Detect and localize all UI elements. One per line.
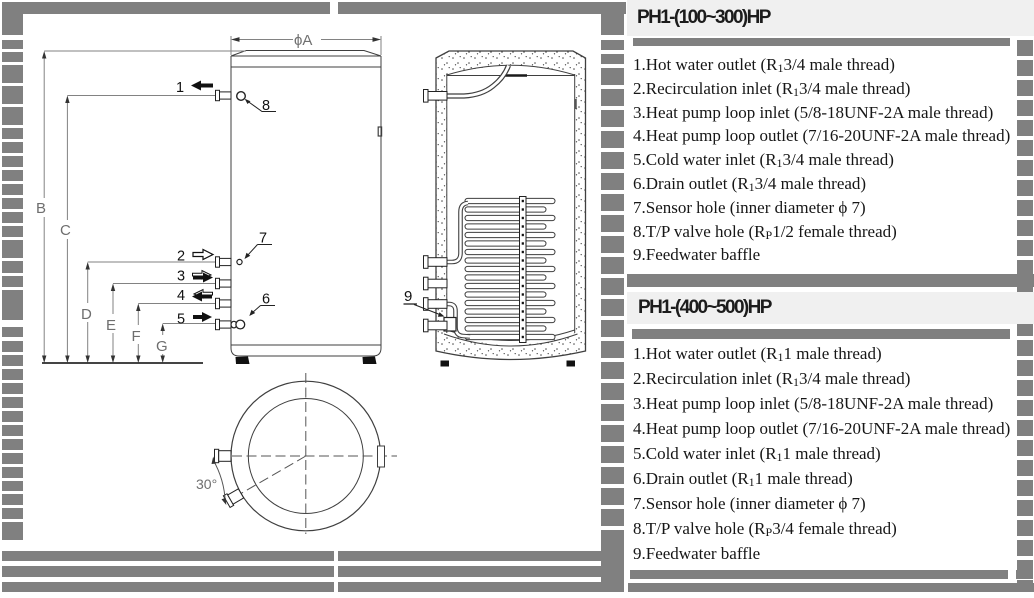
svg-text:3: 3 bbox=[177, 269, 185, 285]
svg-text:ϕA: ϕA bbox=[294, 32, 312, 49]
svg-text:1: 1 bbox=[176, 80, 184, 96]
svg-text:5: 5 bbox=[177, 312, 185, 328]
svg-text:G: G bbox=[156, 338, 168, 355]
svg-text:30°: 30° bbox=[196, 476, 217, 492]
svg-text:D: D bbox=[81, 306, 92, 323]
svg-text:4: 4 bbox=[177, 288, 185, 304]
svg-text:2: 2 bbox=[177, 249, 185, 265]
svg-text:B: B bbox=[36, 200, 46, 217]
svg-text:8: 8 bbox=[262, 98, 270, 114]
svg-text:F: F bbox=[132, 328, 141, 345]
svg-text:C: C bbox=[60, 222, 71, 239]
svg-text:9: 9 bbox=[404, 288, 412, 305]
svg-text:E: E bbox=[106, 317, 116, 334]
